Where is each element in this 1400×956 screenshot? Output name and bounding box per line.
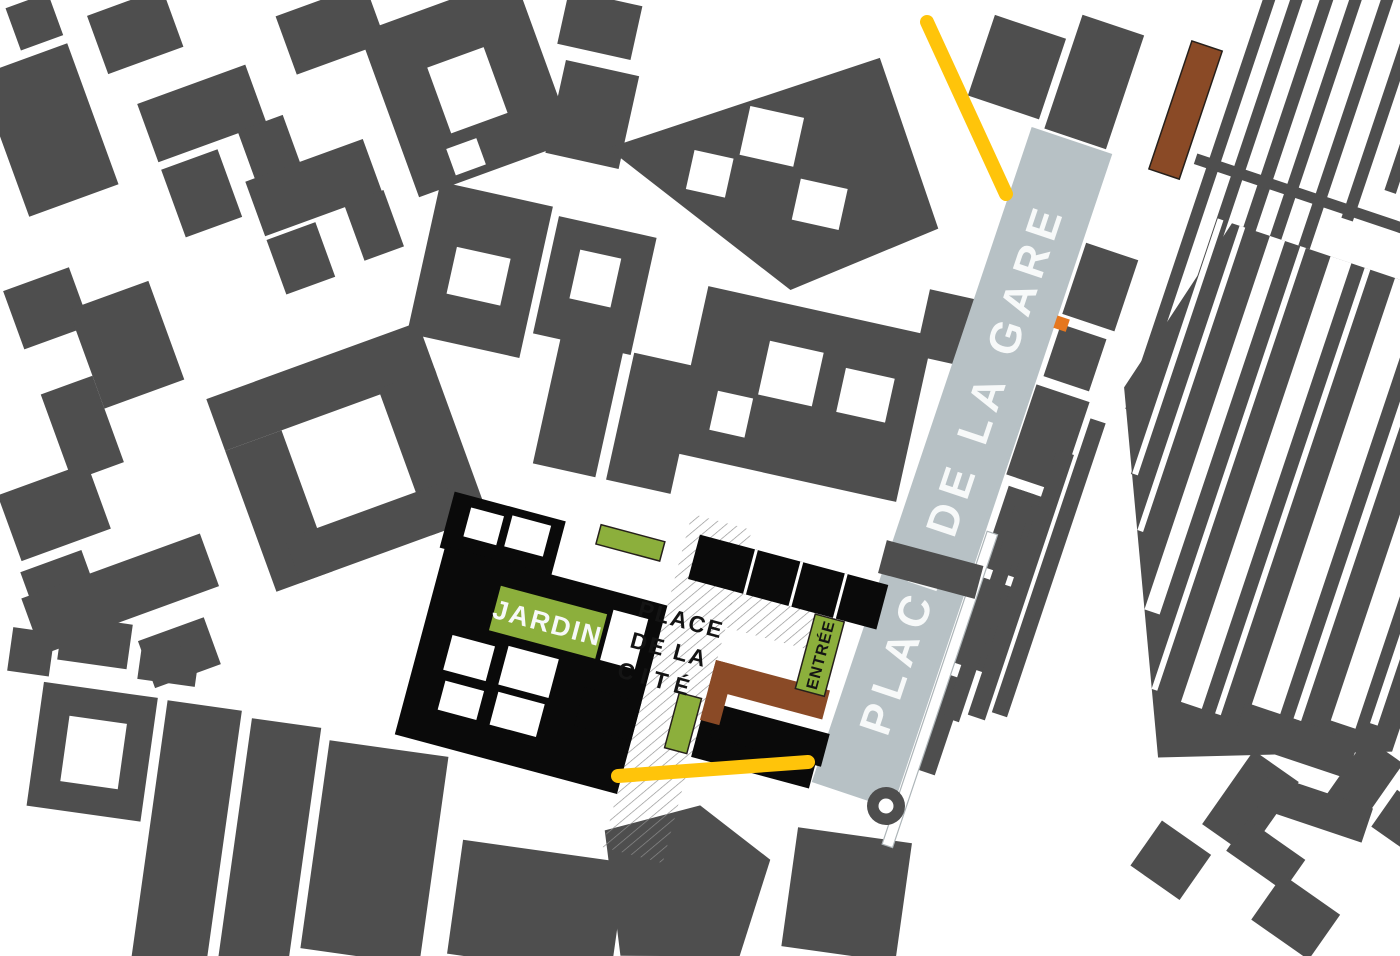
building-block	[137, 641, 200, 687]
courtyard	[60, 716, 127, 789]
building-block	[7, 627, 55, 676]
map-canvas: PLACE DE LA GARE JARDIN PLACE DE LA CITÉ…	[0, 0, 1400, 956]
courtyard	[758, 341, 824, 407]
courtyard	[686, 150, 734, 198]
site-plan-map: PLACE DE LA GARE JARDIN PLACE DE LA CITÉ…	[0, 0, 1400, 956]
roundabout-marker-center	[879, 799, 894, 814]
